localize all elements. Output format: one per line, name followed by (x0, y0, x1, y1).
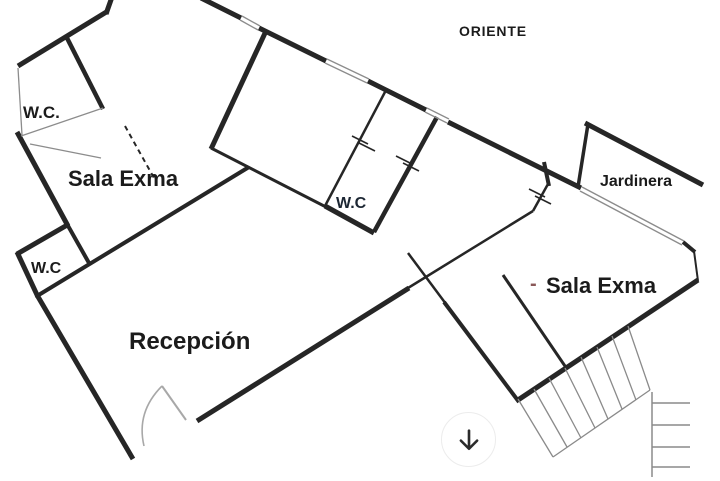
wall-segment (240, 20, 258, 30)
label-jardinera: Jardinera (600, 174, 672, 190)
wall-segment (518, 280, 698, 400)
label-wc-top-left: W.C. (23, 104, 60, 121)
wall-segment (67, 224, 89, 263)
wall-segment (325, 63, 367, 83)
wall-segment (66, 36, 103, 109)
label-recepcion: Recepción (129, 330, 250, 354)
wall-segment (201, 0, 241, 18)
wall-segment (327, 59, 369, 79)
wall-segment (597, 347, 622, 409)
wall-segment (30, 144, 101, 158)
door-swing-arc (142, 386, 162, 446)
wall-segment (534, 389, 567, 447)
door-leaf (162, 386, 186, 420)
wall-segment (325, 92, 385, 206)
wall-segment (628, 326, 650, 390)
label-sala-exma-right: Sala Exma (546, 275, 656, 297)
wall-segment (582, 187, 684, 241)
wall-segment (578, 124, 588, 187)
wall-segment (533, 184, 548, 211)
wall-segment (448, 122, 581, 188)
wall-segment (408, 253, 446, 304)
wall-segment (544, 162, 549, 186)
wall-segment (518, 399, 553, 457)
wall-segment (259, 28, 326, 61)
label-wc-lower-left: W.C (31, 261, 61, 277)
down-arrow-icon (454, 425, 484, 455)
label-red-dash: - (530, 274, 537, 294)
floor-plan-canvas: ORIENTE W.C. Sala Exma Jardinera W.C W.C… (0, 0, 720, 481)
label-sala-exma-left: Sala Exma (68, 168, 178, 190)
wall-segment (18, 11, 108, 66)
wall-segment (427, 108, 449, 119)
wall-segment (444, 302, 519, 402)
wall-segment (17, 224, 69, 254)
wall-segment (565, 368, 595, 428)
wall-segment (211, 31, 266, 149)
wall-segment (612, 336, 636, 400)
wall-segment (37, 295, 133, 459)
wall-segment (374, 117, 437, 232)
wall-segment (581, 357, 608, 419)
scroll-down-button[interactable] (441, 412, 496, 467)
label-wc-center: W.C (336, 196, 366, 212)
label-oriente: ORIENTE (459, 24, 527, 38)
wall-segment (580, 191, 682, 245)
wall-segment (683, 242, 695, 252)
floor-plan-drawing (0, 0, 720, 481)
wall-segment (242, 16, 260, 26)
wall-segment (694, 251, 698, 281)
wall-segment (18, 68, 22, 135)
wall-segment (549, 378, 581, 438)
